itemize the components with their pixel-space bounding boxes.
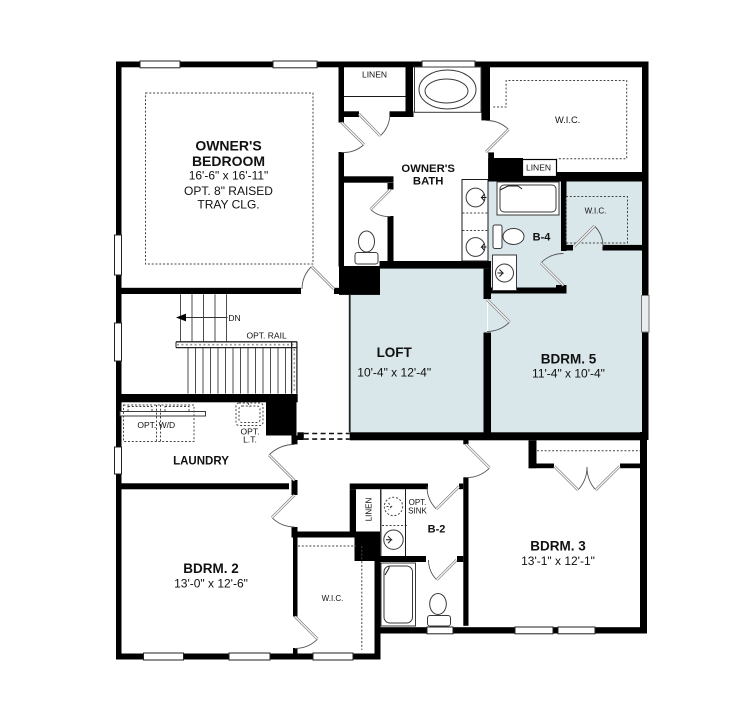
svg-text:W.I.C.: W.I.C.	[585, 206, 607, 215]
svg-text:11'-4" x 10'-4": 11'-4" x 10'-4"	[532, 366, 605, 380]
svg-text:OWNER'S: OWNER'S	[195, 137, 261, 153]
svg-text:16'-6" x 16'-11": 16'-6" x 16'-11"	[189, 169, 269, 183]
svg-text:SINK: SINK	[408, 506, 427, 515]
svg-text:LAUNDRY: LAUNDRY	[173, 456, 229, 468]
svg-text:LOFT: LOFT	[377, 345, 413, 360]
svg-text:10'-4" x 12'-4": 10'-4" x 12'-4"	[357, 366, 431, 380]
svg-text:B-2: B-2	[428, 524, 446, 536]
svg-text:BEDROOM: BEDROOM	[192, 153, 265, 169]
svg-text:OWNER'S: OWNER'S	[401, 163, 455, 175]
svg-text:DN: DN	[228, 313, 240, 323]
svg-text:BATH: BATH	[413, 176, 444, 188]
svg-text:OPT. RAIL: OPT. RAIL	[247, 330, 287, 340]
svg-text:LINEN: LINEN	[526, 163, 551, 173]
svg-text:OPT. W/D: OPT. W/D	[137, 420, 175, 430]
svg-text:OPT. 8" RAISED: OPT. 8" RAISED	[184, 184, 273, 198]
svg-text:13'-0" x 12'-6": 13'-0" x 12'-6"	[174, 577, 248, 591]
svg-text:W.I.C.: W.I.C.	[555, 115, 580, 125]
svg-text:BDRM. 3: BDRM. 3	[530, 539, 586, 554]
svg-text:L.T.: L.T.	[243, 435, 257, 445]
svg-text:B-4: B-4	[533, 232, 552, 244]
svg-text:TRAY CLG.: TRAY CLG.	[197, 197, 259, 211]
svg-text:W.I.C.: W.I.C.	[322, 594, 344, 603]
svg-text:LINEN: LINEN	[365, 497, 374, 521]
svg-text:BDRM. 2: BDRM. 2	[183, 561, 239, 576]
svg-text:BDRM. 5: BDRM. 5	[541, 352, 597, 367]
svg-text:LINEN: LINEN	[362, 70, 387, 80]
svg-text:13'-1" x 12'-1": 13'-1" x 12'-1"	[521, 554, 595, 568]
